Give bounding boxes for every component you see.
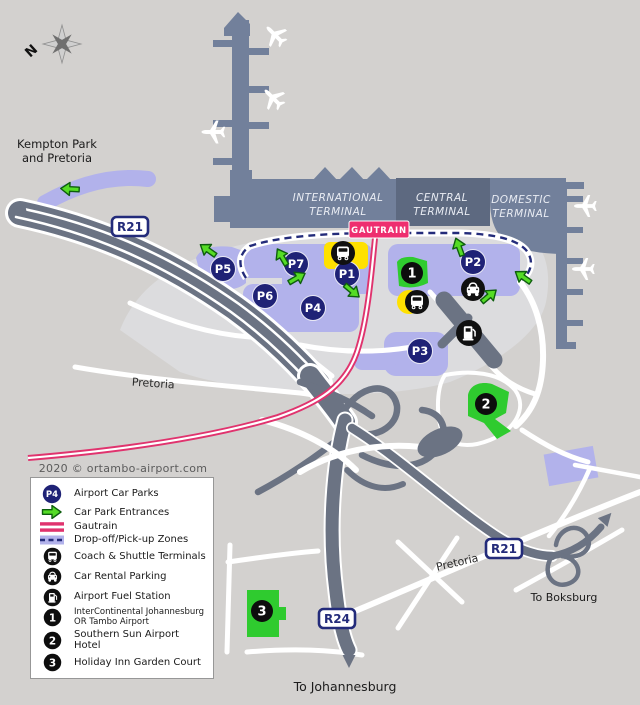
svg-text:P1: P1 — [339, 267, 355, 281]
to-boksburg-label: To Boksburg — [530, 591, 598, 604]
car-park-marker-p6[interactable]: P6 — [253, 284, 278, 309]
hotel-marker-2[interactable]: 2 — [475, 393, 497, 415]
svg-text:P4: P4 — [305, 301, 321, 315]
svg-text:TERMINAL: TERMINAL — [309, 206, 366, 218]
hotel-3-icon: 3 — [39, 653, 65, 672]
svg-text:R21: R21 — [117, 220, 143, 234]
svg-text:P2: P2 — [465, 255, 481, 269]
route-badge-r21-north: R21 — [112, 217, 148, 236]
legend-item-car-rental: Car Rental Parking — [39, 567, 207, 586]
car-rental-icon[interactable] — [461, 277, 485, 301]
car-park-marker-p3[interactable]: P3 — [408, 339, 433, 364]
legend-item-fuel-station: Airport Fuel Station — [39, 588, 207, 607]
fuel-station-icon[interactable] — [456, 320, 482, 346]
svg-text:P6: P6 — [257, 289, 273, 303]
coach-shuttle-icon[interactable] — [331, 241, 355, 265]
svg-text:2: 2 — [48, 635, 55, 647]
map-legend: P4 Airport Car Parks Car Park Entrances … — [30, 477, 214, 679]
international-terminal-label: INTERNATIONAL — [293, 192, 384, 204]
north-pier — [232, 20, 249, 175]
svg-text:P7: P7 — [288, 257, 304, 271]
to-johannesburg-label: To Johannesburg — [293, 679, 397, 694]
gautrain-line-icon — [39, 521, 65, 533]
svg-text:1: 1 — [48, 612, 55, 624]
legend-item-entrances: Car Park Entrances — [39, 505, 207, 519]
hotel-2-icon: 2 — [39, 631, 65, 650]
kempton-park-label: Kempton Park — [17, 137, 97, 151]
hotel-1-icon: 1 — [39, 608, 65, 627]
car-park-marker-p4[interactable]: P4 — [301, 296, 326, 321]
svg-text:3: 3 — [48, 657, 55, 669]
terminal-roof-sawtooth — [312, 167, 392, 181]
route-badge-r24: R24 — [319, 609, 355, 628]
svg-text:3: 3 — [257, 605, 266, 620]
airport-map: P5 P7 P1 P6 P4 P2 P3 1 2 3 R21 — [0, 0, 640, 705]
svg-text:2: 2 — [481, 398, 490, 413]
car-park-badge-icon: P4 — [39, 484, 65, 504]
legend-item-coach-shuttle: Coach & Shuttle Terminals — [39, 547, 207, 566]
svg-text:R24: R24 — [324, 612, 350, 626]
entrance-arrow-icon — [39, 505, 65, 519]
gautrain-badge: GAUTRAIN — [349, 221, 409, 238]
svg-text:TERMINAL: TERMINAL — [492, 208, 549, 220]
hotel-marker-3[interactable]: 3 — [251, 600, 273, 622]
legend-item-hotel-2: 2 Southern Sun Airport Hotel — [39, 629, 207, 652]
copyright-text: 2020 © ortambo-airport.com — [28, 462, 218, 475]
legend-item-gautrain: Gautrain — [39, 521, 207, 533]
coach-shuttle-icon — [39, 547, 65, 566]
legend-item-dropoff: Drop-off/Pick-up Zones — [39, 534, 207, 546]
domestic-terminal-label: DOMESTIC — [491, 194, 551, 206]
svg-text:TERMINAL: TERMINAL — [413, 206, 470, 218]
car-park-marker-p5[interactable]: P5 — [211, 257, 236, 282]
central-terminal-label: CENTRAL — [416, 192, 468, 204]
svg-text:P5: P5 — [215, 262, 231, 276]
svg-text:1: 1 — [407, 267, 416, 282]
coach-shuttle-icon[interactable] — [405, 290, 429, 314]
fuel-station-icon — [39, 588, 65, 607]
svg-text:P4: P4 — [46, 490, 58, 500]
svg-text:P3: P3 — [412, 344, 428, 358]
svg-text:R21: R21 — [491, 542, 517, 556]
legend-item-hotel-3: 3 Holiday Inn Garden Court — [39, 653, 207, 672]
dropoff-zone-icon — [39, 534, 65, 546]
legend-item-hotel-1: 1 InterContinental Johannesburg OR Tambo… — [39, 608, 207, 628]
east-pier — [556, 182, 567, 346]
legend-item-car-parks: P4 Airport Car Parks — [39, 484, 207, 504]
car-park-marker-p1[interactable]: P1 — [335, 262, 360, 287]
route-badge-r21-south: R21 — [486, 539, 522, 558]
car-rental-icon — [39, 567, 65, 586]
svg-text:GAUTRAIN: GAUTRAIN — [351, 226, 407, 236]
hotel-marker-1[interactable]: 1 — [401, 262, 423, 284]
svg-text:and Pretoria: and Pretoria — [22, 151, 92, 165]
